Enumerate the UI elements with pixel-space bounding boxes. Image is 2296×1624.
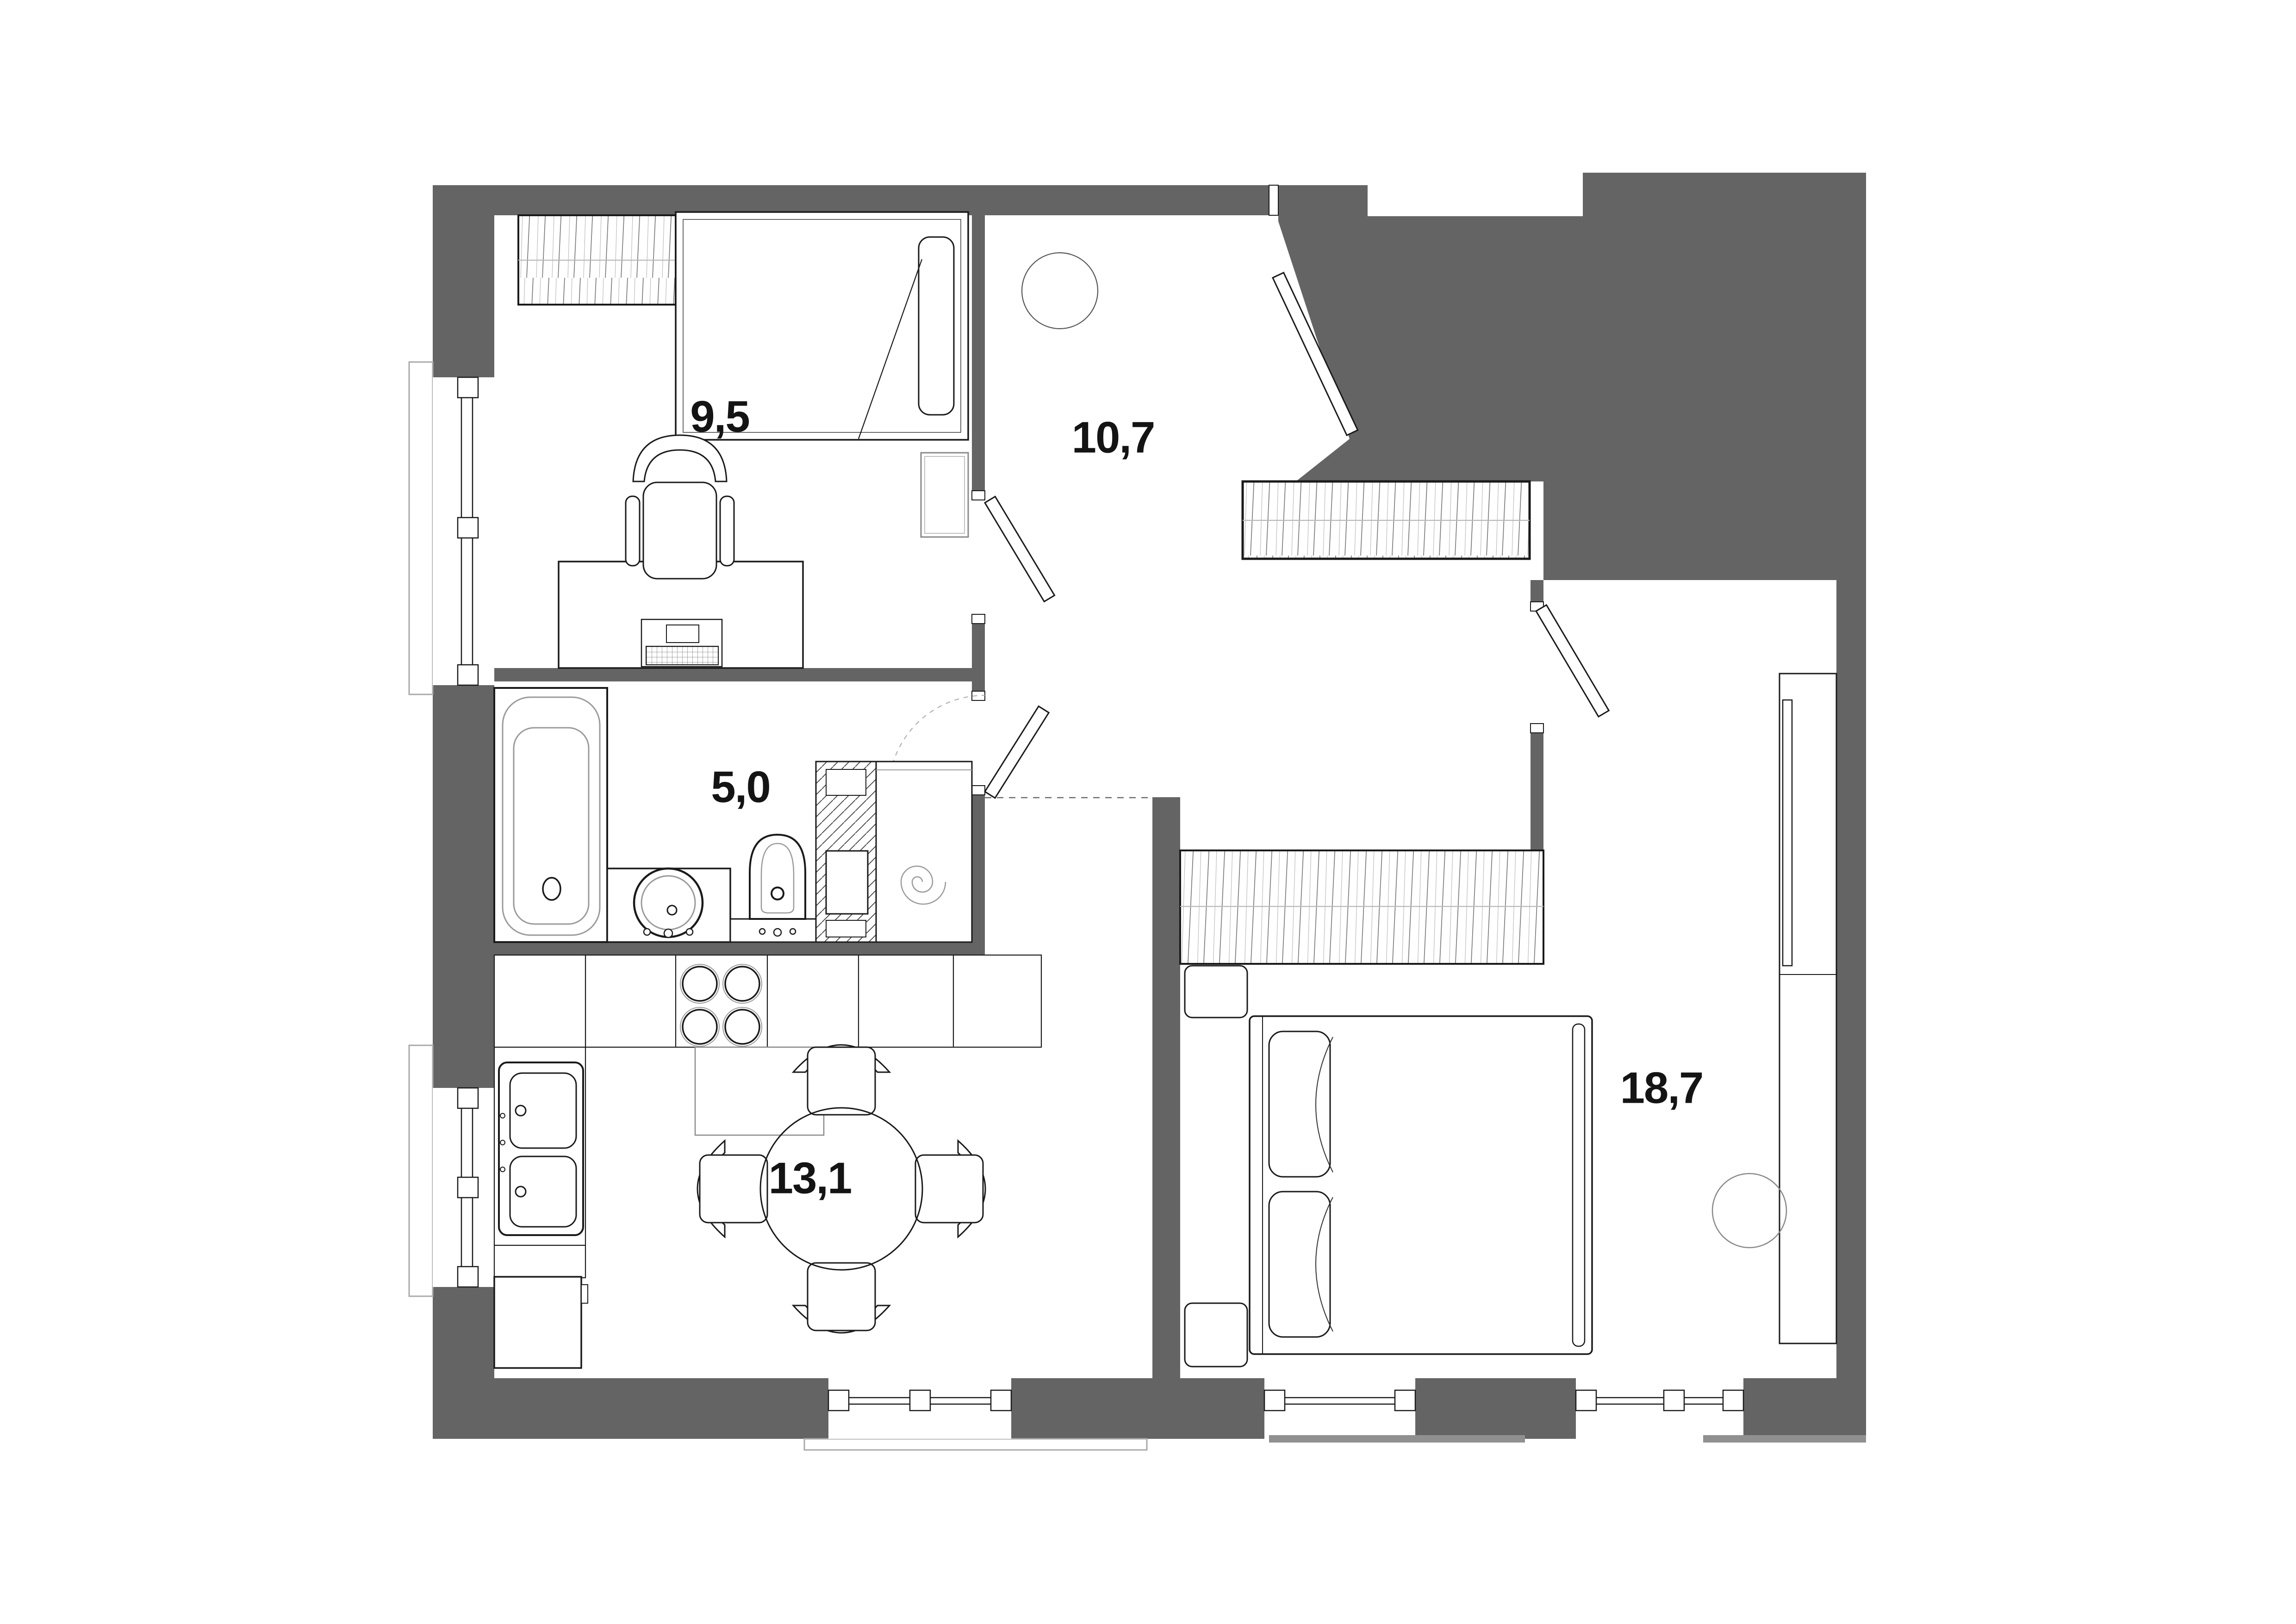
entry-door-jamb bbox=[1269, 185, 1278, 215]
bidet-drain bbox=[772, 887, 784, 899]
wall-bath-bottom bbox=[494, 942, 985, 955]
window-bedroom-bottom-2 bbox=[1576, 1378, 1743, 1435]
room-area-label: 9,5 bbox=[690, 392, 749, 442]
floor-plan: 9,5 10,7 bbox=[0, 0, 2296, 1624]
wardrobe-small-room bbox=[518, 215, 676, 305]
chair-backrest bbox=[633, 435, 727, 481]
bedroom-door-jamb-bottom bbox=[1531, 724, 1543, 733]
room-door-jamb-bottom bbox=[972, 614, 985, 624]
room-bathroom: 5,0 bbox=[494, 688, 972, 942]
bed-footboard bbox=[1573, 1024, 1585, 1346]
bed-pillow-bottom bbox=[1269, 1192, 1330, 1337]
balcony-slab-kitchen bbox=[804, 1439, 1147, 1450]
double-bed bbox=[1250, 1016, 1592, 1354]
bathtub-drain bbox=[543, 878, 560, 900]
wall-left-lower bbox=[433, 1287, 494, 1439]
chair-seat bbox=[643, 482, 716, 579]
balcony-slab-left-lower bbox=[409, 1045, 433, 1296]
tv-panel bbox=[1783, 700, 1792, 966]
wall-hall-partition-upper bbox=[972, 215, 985, 500]
cabinet-handle bbox=[581, 1285, 588, 1303]
wall-room-bath-partition bbox=[494, 668, 985, 681]
balcony-slab-bedroom-1 bbox=[1269, 1435, 1525, 1443]
ventilation-shaft bbox=[816, 762, 876, 942]
wall-nook-stub-lower bbox=[1531, 733, 1543, 850]
floor-plan-page: 9,5 10,7 bbox=[0, 0, 2296, 1624]
wall-bottom-seg1 bbox=[494, 1378, 828, 1439]
ceiling-lamp-circle bbox=[1022, 253, 1098, 329]
dining-chair bbox=[793, 1263, 890, 1333]
round-pouf bbox=[1712, 1174, 1786, 1248]
bidet bbox=[730, 835, 816, 942]
wall-top bbox=[433, 185, 1269, 215]
wall-bottom-seg2 bbox=[1011, 1378, 1264, 1439]
bed-pillow bbox=[919, 237, 954, 415]
room-area-label: 18,7 bbox=[1620, 1063, 1703, 1113]
room-area-label: 13,1 bbox=[769, 1154, 852, 1203]
balcony-slab-left-upper bbox=[409, 362, 433, 694]
bedroom-door-leaf bbox=[1536, 605, 1609, 717]
wall-hall-partition-mid bbox=[972, 624, 985, 693]
tall-cabinet bbox=[494, 1277, 588, 1368]
room-bedroom-master: 18,7 bbox=[1180, 674, 1836, 1367]
window-kitchen-bottom bbox=[828, 1378, 1011, 1439]
dining-chair bbox=[793, 1045, 890, 1115]
room-area-label: 5,0 bbox=[711, 762, 770, 812]
window-kitchen-left bbox=[433, 1088, 494, 1287]
dining-chair bbox=[697, 1141, 767, 1237]
sink-drain bbox=[667, 906, 677, 915]
wardrobe-master bbox=[1180, 850, 1543, 964]
room-door-leaf bbox=[985, 497, 1055, 602]
bath-door-jamb-bottom bbox=[972, 786, 985, 795]
wall-left-middle bbox=[433, 685, 494, 1088]
bath-door-leaf bbox=[985, 706, 1049, 798]
bedside-table-bottom bbox=[1185, 1303, 1247, 1367]
office-chair bbox=[626, 435, 734, 579]
wall-kitchen-bedroom bbox=[1152, 797, 1180, 1378]
tv-console bbox=[1780, 674, 1836, 1343]
window-room-left bbox=[433, 377, 494, 685]
wall-bottom-seg3 bbox=[1415, 1378, 1576, 1439]
chair-armrest-left bbox=[626, 496, 640, 566]
room-area-label: 10,7 bbox=[1072, 413, 1155, 462]
chair-armrest-right bbox=[720, 496, 734, 566]
laptop bbox=[641, 619, 722, 667]
wall-nook-stub-upper bbox=[1531, 580, 1543, 604]
bedside-table-top bbox=[1185, 966, 1247, 1018]
bed-pillow-top bbox=[1269, 1031, 1330, 1177]
bedside-cabinet bbox=[921, 453, 968, 537]
wall-left-upper bbox=[433, 185, 494, 377]
dining-chair bbox=[915, 1141, 985, 1237]
wall-hall-partition-lower bbox=[972, 795, 985, 955]
balcony-slab-bedroom-2 bbox=[1703, 1435, 1866, 1443]
room-bedroom-small: 9,5 bbox=[518, 212, 968, 668]
walls bbox=[433, 173, 1866, 1439]
wall-right bbox=[1836, 580, 1866, 1439]
room-door-jamb-top bbox=[972, 491, 985, 500]
hallway-built-in-wardrobe bbox=[1243, 481, 1530, 559]
vanity-sink bbox=[607, 868, 730, 942]
bathtub bbox=[494, 688, 607, 942]
room-kitchen: 13,1 bbox=[494, 955, 1041, 1368]
washing-machine bbox=[876, 762, 972, 942]
double-sink-unit bbox=[499, 1062, 583, 1235]
window-bedroom-bottom-1 bbox=[1264, 1378, 1415, 1435]
